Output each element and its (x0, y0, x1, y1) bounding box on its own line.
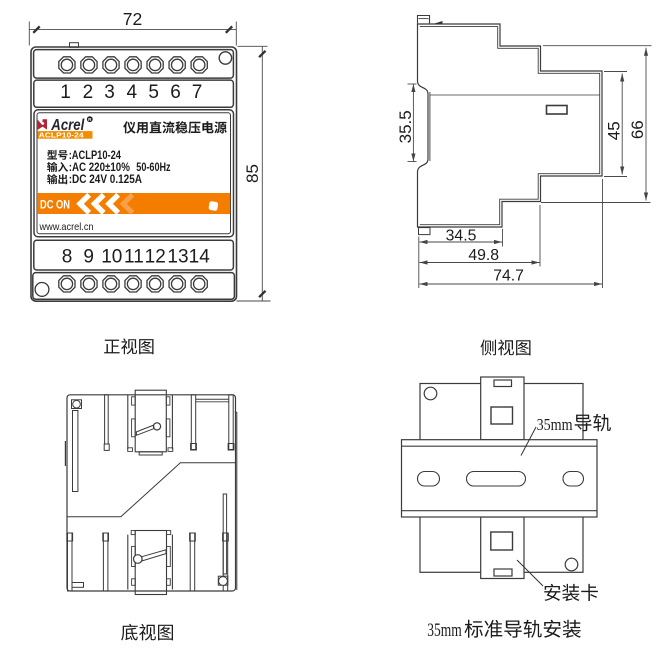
svg-text:72: 72 (123, 9, 142, 29)
svg-text:6: 6 (170, 82, 181, 103)
svg-text:49.8: 49.8 (468, 247, 499, 264)
svg-text:8: 8 (62, 246, 73, 267)
svg-text:45: 45 (605, 121, 624, 140)
svg-text:3: 3 (104, 82, 115, 103)
svg-text:www.acrel.cn: www.acrel.cn (39, 221, 94, 233)
svg-text:74.7: 74.7 (493, 268, 524, 285)
svg-text:9: 9 (83, 246, 94, 267)
svg-text:85: 85 (243, 164, 262, 183)
svg-text:DC ON: DC ON (40, 199, 70, 211)
svg-text:12: 12 (145, 246, 166, 267)
svg-text:11: 11 (124, 246, 144, 267)
svg-text:1: 1 (60, 82, 71, 103)
svg-text:34.5: 34.5 (446, 227, 477, 244)
svg-text:35mm: 35mm (537, 415, 573, 434)
svg-text:5: 5 (148, 82, 159, 103)
svg-text:10: 10 (101, 246, 122, 267)
svg-text:14: 14 (189, 246, 211, 267)
svg-text:2: 2 (83, 82, 94, 103)
svg-text::DC 24V 0.125A: :DC 24V 0.125A (69, 172, 142, 186)
svg-text:7: 7 (192, 82, 203, 103)
svg-text:ACLP10-24: ACLP10-24 (39, 131, 84, 140)
svg-text:35.5: 35.5 (396, 110, 415, 143)
svg-text:13: 13 (167, 246, 188, 267)
svg-text:66: 66 (628, 120, 647, 139)
svg-text:35mm: 35mm (427, 621, 462, 641)
svg-text:4: 4 (127, 82, 138, 103)
